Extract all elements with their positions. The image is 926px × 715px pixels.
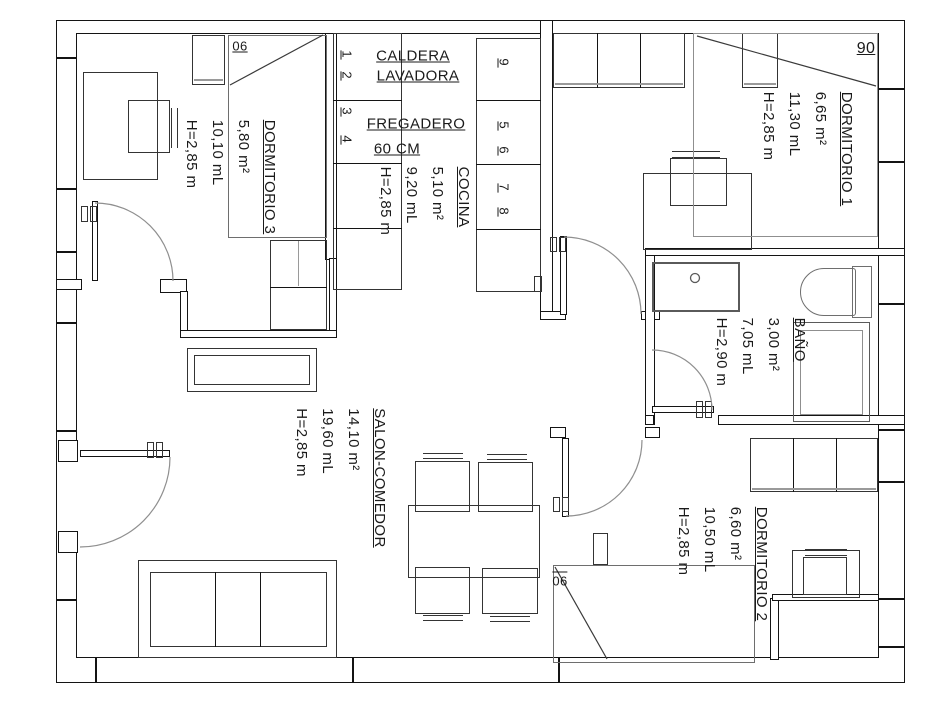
cabinet-number-6: 6 bbox=[497, 146, 512, 155]
cabinet-number-9: 9 bbox=[497, 58, 512, 67]
dorm2-bed-width-label: 06 bbox=[552, 572, 567, 589]
room-height: H=2,90 m bbox=[708, 318, 734, 387]
room-perimeter: 19,60 mL bbox=[314, 408, 340, 547]
room-name: BAÑO bbox=[786, 318, 812, 387]
room-height: H=2,85 m bbox=[755, 92, 781, 207]
room-perimeter: 11,30 mL bbox=[781, 92, 807, 207]
dorm1-bed-diagonal bbox=[697, 36, 876, 86]
room-height: H=2,85 m bbox=[670, 507, 696, 622]
room-name: DORMITORIO 3 bbox=[256, 120, 282, 235]
dorm1-label: DORMITORIO 1 6,65 m² 11,30 mL H=2,85 m bbox=[755, 92, 859, 207]
dorm2-door-arc bbox=[566, 440, 642, 516]
kitchen-size-label: 60 CM bbox=[374, 141, 420, 158]
room-area: 5,80 m² bbox=[230, 120, 256, 235]
cabinet-number-5: 5 bbox=[497, 121, 512, 130]
room-height: H=2,85 m bbox=[372, 167, 398, 236]
entry-door-arc bbox=[80, 457, 170, 547]
dorm3-bed-width-label: 06 bbox=[232, 39, 247, 54]
room-area: 3,00 m² bbox=[760, 318, 786, 387]
bano-label: BAÑO 3,00 m² 7,05 mL H=2,90 m bbox=[708, 318, 812, 387]
room-perimeter: 10,50 mL bbox=[696, 507, 722, 622]
room-name: DORMITORIO 1 bbox=[833, 92, 859, 207]
room-perimeter: 10,10 mL bbox=[204, 120, 230, 235]
room-area: 14,10 m² bbox=[340, 408, 366, 547]
cabinet-number-2: 2 bbox=[340, 71, 355, 80]
dorm2-label: DORMITORIO 2 6,60 m² 10,50 mL H=2,85 m bbox=[670, 507, 774, 622]
cabinet-number-3: 3 bbox=[340, 107, 355, 116]
kitchen-caldera-label: CALDERA bbox=[376, 48, 450, 65]
bath-door-arc bbox=[652, 350, 712, 410]
kitchen-lavadora-label: LAVADORA bbox=[377, 68, 460, 85]
room-height: H=2,85 m bbox=[288, 408, 314, 547]
room-area: 6,65 m² bbox=[807, 92, 833, 207]
kitchen-fregadero-label: FREGADERO bbox=[367, 116, 466, 133]
dorm3-door-arc bbox=[95, 203, 173, 281]
room-name: COCINA bbox=[450, 167, 476, 236]
cocina-label: COCINA 5,10 m² 9,20 mL H=2,85 m bbox=[372, 167, 476, 236]
floor-plan: DORMITORIO 3 5,80 m² 10,10 mL H=2,85 m C… bbox=[0, 0, 926, 715]
room-name: SALON-COMEDOR bbox=[366, 408, 392, 547]
hall-door-arc bbox=[564, 237, 641, 314]
room-height: H=2,85 m bbox=[178, 120, 204, 235]
room-perimeter: 7,05 mL bbox=[734, 318, 760, 387]
room-area: 6,60 m² bbox=[722, 507, 748, 622]
cabinet-number-1: 1 bbox=[340, 50, 355, 59]
cabinet-number-7: 7 bbox=[497, 183, 512, 192]
cabinet-number-8: 8 bbox=[497, 207, 512, 216]
bath-faucet-icon bbox=[691, 274, 700, 283]
room-area: 5,10 m² bbox=[424, 167, 450, 236]
room-perimeter: 9,20 mL bbox=[398, 167, 424, 236]
dorm1-bed-width-label: 90 bbox=[857, 40, 876, 58]
salon-label: SALON-COMEDOR 14,10 m² 19,60 mL H=2,85 m bbox=[288, 408, 392, 547]
cabinet-number-4: 4 bbox=[340, 135, 355, 144]
dorm3-label: DORMITORIO 3 5,80 m² 10,10 mL H=2,85 m bbox=[178, 120, 282, 235]
room-name: DORMITORIO 2 bbox=[748, 507, 774, 622]
